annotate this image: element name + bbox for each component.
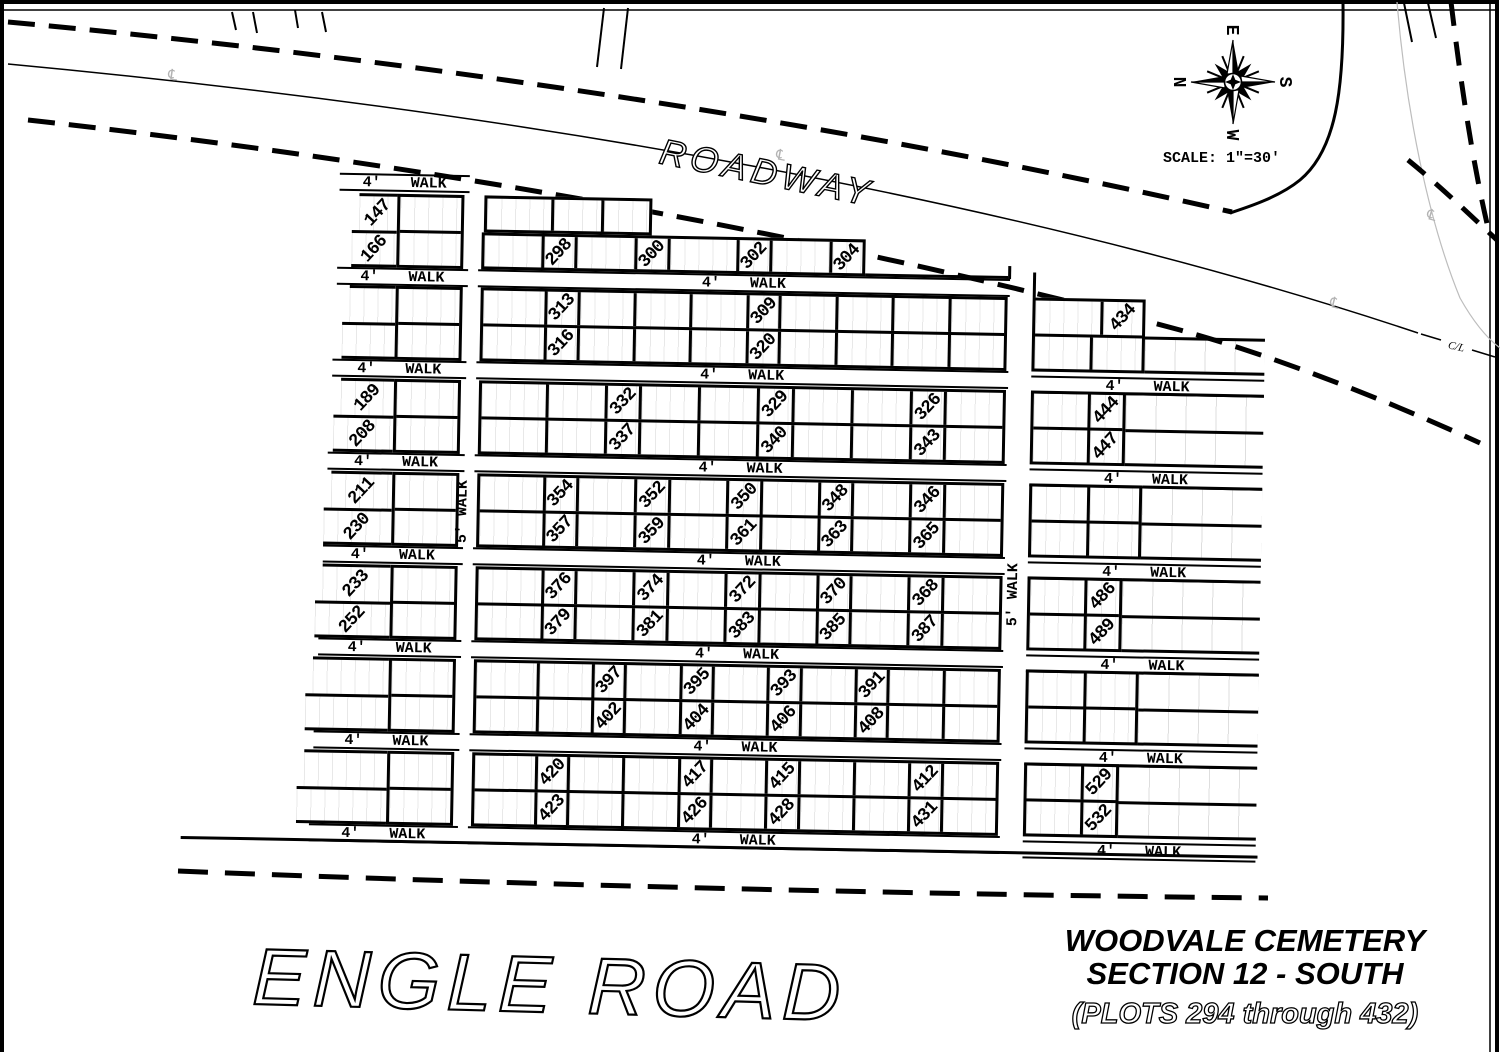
- plot-cell: [475, 755, 535, 789]
- walk-size-label: 4': [695, 645, 713, 662]
- plot-cell: 348: [817, 483, 851, 516]
- plot-number: 529: [1083, 765, 1118, 800]
- plot-cell: [941, 578, 1000, 612]
- walk-size-label: 4': [363, 174, 381, 191]
- plot-number: 387: [908, 612, 943, 647]
- walk-word-label: WALK: [402, 453, 438, 471]
- walk-size-label: 4': [702, 274, 720, 291]
- plot-cell: 326: [909, 391, 944, 424]
- plot-cell: [481, 419, 545, 453]
- plot-row: [400, 197, 462, 231]
- plot-cell: [341, 322, 395, 360]
- plot-cell: 166: [351, 230, 397, 268]
- plot-cell: [940, 613, 999, 647]
- plot-number: 313: [545, 291, 580, 326]
- plot-cell: 332: [604, 386, 639, 419]
- plot-cell: 302: [736, 240, 770, 272]
- plot-cell: 486: [1084, 580, 1119, 613]
- walk-size-label: 4': [697, 552, 715, 569]
- plot-cell: 298: [541, 236, 575, 268]
- plot-cell: 233: [322, 563, 391, 601]
- plot-number: 357: [543, 512, 578, 547]
- title-line-2: SECTION 12 - SOUTH: [1060, 957, 1430, 990]
- compass-letter-bottom: W: [1221, 130, 1241, 141]
- plot-cell: [769, 241, 830, 273]
- plot-cell: [566, 793, 622, 827]
- plot-number: 532: [1082, 801, 1117, 836]
- plot-cell: [1032, 486, 1088, 520]
- plot-section: 397395393391402404406408: [473, 659, 1001, 743]
- plot-row: [1034, 333, 1142, 370]
- plot-cell: [758, 574, 817, 608]
- plot-row: [487, 198, 650, 232]
- plot-number: 298: [542, 235, 577, 270]
- walk-word-label: WALK: [408, 269, 444, 287]
- centerline-dash: [1421, 334, 1441, 340]
- plot-section: 332329326337340343: [478, 380, 1006, 464]
- plot-number: 365: [910, 519, 945, 554]
- plot-cell: 363: [817, 518, 851, 551]
- plot-number: 402: [591, 699, 626, 734]
- plot-section: [389, 565, 457, 640]
- plot-number: 444: [1089, 394, 1124, 429]
- plot-cell: 415: [765, 761, 798, 794]
- plot-number: 166: [357, 231, 392, 266]
- plot-cell: 404: [678, 702, 711, 735]
- walk-strip: 4'WALK: [327, 452, 464, 473]
- plot-cell: [399, 232, 461, 266]
- plot-cell: [535, 699, 591, 733]
- plot-cell: 379: [540, 606, 574, 639]
- centerline-symbol: ℄: [167, 65, 179, 84]
- walk-word-label: WALK: [405, 360, 441, 378]
- plot-cell: [398, 324, 460, 358]
- walk-word-label: WALK: [1148, 657, 1184, 675]
- plot-cell: 357: [542, 513, 576, 546]
- plot-row: [390, 754, 452, 788]
- plot-number: 350: [727, 480, 762, 515]
- plot-number: 309: [747, 294, 782, 329]
- plot-cell: [948, 299, 1005, 333]
- plot-cell: [834, 332, 891, 366]
- section-connector-line: [1033, 272, 1036, 297]
- plot-row: [396, 414, 458, 451]
- walk-strip: 4'WALK: [309, 823, 458, 844]
- plot-cell: [851, 483, 910, 517]
- plot-cell: 211: [331, 471, 393, 509]
- plot-section: 444447: [1030, 390, 1126, 466]
- plot-row: [1032, 486, 1140, 520]
- plot-number: 417: [678, 758, 713, 793]
- walk-size-label: 4': [700, 366, 718, 383]
- plot-cell: [392, 603, 454, 637]
- plot-cell: [697, 423, 757, 457]
- walk-word-label: WALK: [392, 732, 428, 750]
- plot-cell: 408: [854, 705, 887, 738]
- plot-cell: [601, 201, 649, 233]
- plot-cell: 420: [534, 756, 567, 789]
- centerline-dash: [1472, 350, 1495, 357]
- plot-number: 343: [910, 426, 945, 461]
- plot-section: [1025, 669, 1139, 745]
- plot-cell: [639, 386, 699, 420]
- plot-row: [394, 507, 456, 544]
- plot-cell: [545, 385, 605, 419]
- plot-cell: [391, 661, 453, 695]
- empty-plot-strip: [1141, 486, 1262, 562]
- plot-cell: [849, 612, 908, 646]
- plot-cell: 147: [359, 193, 398, 231]
- roadway-cut-step: [1008, 266, 1011, 279]
- plot-number: 189: [350, 381, 385, 416]
- empty-plot-strip: [1144, 337, 1265, 376]
- plot-cell: 365: [908, 520, 942, 553]
- plot-cell: [487, 198, 551, 230]
- plot-cell: 532: [1080, 802, 1115, 835]
- plot-cell: [850, 519, 909, 553]
- plot-section: [394, 286, 462, 361]
- plot-cell: 395: [679, 666, 712, 699]
- plot-number: 361: [726, 515, 761, 550]
- walk-size-label: 4': [1100, 656, 1118, 673]
- walk-word-label: WALK: [1145, 843, 1181, 861]
- walk-strip: 4'WALK: [318, 637, 461, 658]
- plot-cell: [1031, 522, 1087, 556]
- plot-row: [393, 568, 455, 602]
- empty-plot-strip-divider: [1142, 522, 1262, 527]
- plot-cell: [394, 510, 456, 544]
- plot-cell: [798, 704, 854, 738]
- empty-plot-strip: [1118, 764, 1257, 841]
- plot-cell: [891, 298, 948, 332]
- plot-cell: [1028, 672, 1084, 706]
- scale-label: SCALE: 1"=30': [1163, 150, 1280, 167]
- plot-cell: 387: [907, 613, 941, 646]
- plot-cell: [1035, 301, 1101, 335]
- title-line-3: (PLOTS 294 through 432): [1072, 998, 1418, 1030]
- plot-cell: [477, 605, 540, 639]
- title-block: WOODVALE CEMETERY SECTION 12 - SOUTH (PL…: [1060, 924, 1430, 1043]
- compass-letter-top: E: [1221, 25, 1241, 36]
- plot-cell: 370: [816, 576, 850, 609]
- plot-cell: [389, 789, 451, 823]
- plot-cell: [759, 517, 818, 551]
- plot-cell: [886, 705, 942, 739]
- walk-size-label: 4': [354, 453, 372, 470]
- walk-size-label: 4': [351, 546, 369, 563]
- plot-cell: [395, 475, 457, 509]
- plot-section: [388, 658, 456, 733]
- plot-cell: 393: [767, 668, 800, 701]
- plot-number: 434: [1106, 301, 1141, 336]
- plot-number: 372: [725, 573, 760, 608]
- plot-section: [484, 195, 653, 235]
- plot-cell: [479, 512, 542, 546]
- plot-number: 337: [605, 420, 640, 455]
- walk-word-label: WALK: [1153, 378, 1189, 396]
- plot-cell: [396, 382, 458, 416]
- plot-number: 329: [758, 387, 793, 422]
- walk-strip: 4'WALK: [337, 267, 468, 287]
- plot-number: 316: [544, 326, 579, 361]
- plot-number: 374: [634, 571, 669, 606]
- plot-cell: [797, 761, 853, 795]
- plot-cell: [574, 237, 635, 269]
- plot-row: [389, 786, 451, 823]
- plot-number: 395: [680, 665, 715, 700]
- plot-cell: 368: [907, 577, 941, 610]
- plot-cell: [481, 383, 545, 417]
- plot-cell: 313: [544, 292, 577, 325]
- plot-cell: 391: [854, 669, 887, 702]
- plot-cell: 320: [745, 331, 778, 364]
- plot-row: [1031, 519, 1139, 556]
- plot-cell: [1083, 673, 1135, 706]
- walk-strip: 4'WALK: [340, 173, 470, 193]
- walk-size-label: 4': [1097, 842, 1115, 859]
- plot-cell: [483, 326, 544, 360]
- plot-cell: [943, 485, 1002, 519]
- plot-cell: [711, 702, 767, 736]
- plot-cell: 423: [534, 792, 567, 825]
- plot-cell: [667, 239, 737, 271]
- plot-number: 348: [819, 482, 854, 517]
- plot-cell: 447: [1087, 430, 1122, 463]
- plot-cell: [476, 698, 536, 732]
- plot-row: [399, 229, 461, 266]
- plot-cell: 230: [323, 508, 392, 546]
- plot-number: 489: [1085, 615, 1120, 650]
- plot-cell: [942, 520, 1001, 554]
- plot-cell: [483, 290, 544, 324]
- plot-cell: 428: [764, 796, 797, 829]
- plot-cell: [698, 387, 758, 421]
- engle-road-label: ENGLE ROAD: [252, 932, 849, 1038]
- plot-cell: [484, 235, 542, 267]
- plot-cell: [1090, 337, 1142, 370]
- plot-row: [391, 693, 453, 730]
- plot-section: 354352350348346357359361363365: [476, 473, 1004, 557]
- plot-cell: 372: [724, 574, 758, 607]
- plot-section: [1028, 483, 1142, 559]
- plot-row: 447: [1033, 426, 1123, 463]
- cemetery-map: { "title": { "line1": "WOODVALE CEMETERY…: [0, 0, 1500, 1052]
- plot-section: [391, 472, 459, 547]
- plot-section: [396, 194, 464, 269]
- walk-size-label: 4': [348, 638, 366, 655]
- walk-size-label: 4': [1104, 470, 1122, 487]
- plot-number: 404: [679, 701, 714, 736]
- plot-cell: [1034, 336, 1090, 370]
- walk-size-label: 4': [341, 824, 359, 841]
- plot-cell: [791, 389, 851, 423]
- walk-strip: 4'WALK: [323, 545, 463, 566]
- plot-row: [398, 289, 460, 323]
- plot-cell: [349, 285, 396, 323]
- title-line-3-svg: (PLOTS 294 through 432): [1060, 990, 1430, 1038]
- plot-cell: 208: [333, 415, 394, 453]
- walk-word-label: WALK: [745, 553, 781, 571]
- plot-cell: [396, 417, 458, 451]
- walk-size-label: 4': [698, 459, 716, 476]
- compass-rose: E S W N: [1168, 25, 1294, 141]
- plot-cell: 374: [632, 572, 666, 605]
- plot-cell: 354: [542, 478, 576, 511]
- walk-strip: 4'WALK: [313, 730, 459, 751]
- plot-cell: [478, 569, 541, 603]
- plot-number: 233: [339, 567, 374, 602]
- plot-cell: [638, 422, 698, 456]
- empty-plot-strip: [1138, 671, 1259, 747]
- walk-strip: 4'WALK: [1022, 840, 1255, 862]
- plot-number: 412: [909, 762, 944, 797]
- compass-letter-right: S: [1274, 77, 1294, 88]
- plot-row: 529: [1027, 765, 1117, 799]
- plot-row: 532: [1026, 798, 1116, 835]
- plot-cell: [941, 706, 997, 740]
- plot-cell: [1030, 579, 1085, 612]
- plot-cell: [852, 798, 908, 832]
- plot-cell: 426: [677, 795, 710, 828]
- empty-plot-strip-divider: [1138, 708, 1258, 713]
- empty-plot-strip: [1125, 392, 1264, 469]
- plot-number: 354: [544, 477, 579, 512]
- plot-number: 302: [737, 238, 772, 273]
- plot-section: [393, 379, 461, 454]
- walk-size-label: 4': [1102, 563, 1120, 580]
- plot-cell: 361: [725, 516, 759, 549]
- walk-strip: 4'WALK: [332, 359, 466, 379]
- plot-number: 379: [541, 605, 576, 640]
- plot-cell: [576, 328, 633, 362]
- plot-cell: [1029, 615, 1084, 648]
- side-road-faint-curve: [1397, 2, 1500, 348]
- plot-cell: [849, 576, 908, 610]
- plot-cell: [778, 296, 835, 330]
- plot-cell: 300: [634, 238, 668, 270]
- plot-cell: [940, 764, 996, 798]
- walk-word-label: WALK: [750, 275, 786, 293]
- plot-cell: 402: [591, 700, 624, 733]
- plot-cell: 343: [908, 427, 943, 460]
- plot-cell: [400, 197, 462, 231]
- plot-row: 298300302304: [484, 235, 863, 273]
- compass-letter-left: N: [1168, 77, 1188, 88]
- plot-cell: [799, 668, 855, 702]
- plot-number: 370: [817, 575, 852, 610]
- top-right-road-edge: [1451, 2, 1489, 232]
- plot-cell: [835, 297, 892, 331]
- walk-word-label: WALK: [396, 639, 432, 657]
- empty-plot-strip-divider: [1122, 615, 1260, 621]
- plot-cell: [1033, 429, 1088, 462]
- plot-grid: 1471661892082112302332522983003023043133…: [177, 165, 1280, 897]
- plot-cell: [942, 671, 998, 705]
- plot-number: 363: [818, 517, 853, 552]
- plot-cell: 489: [1083, 616, 1118, 649]
- plot-row: [398, 321, 460, 358]
- plot-cell: [1086, 523, 1138, 556]
- walk-word-label: WALK: [411, 175, 447, 193]
- plot-number: 391: [855, 668, 890, 703]
- plot-cell: [391, 696, 453, 730]
- plot-section: 434: [1031, 297, 1145, 373]
- plot-number: 397: [592, 663, 627, 698]
- plot-cell: [623, 701, 679, 735]
- plot-number: 406: [767, 702, 802, 737]
- plot-cell: [886, 670, 942, 704]
- plot-cell: [943, 392, 1003, 426]
- plot-number: 415: [765, 760, 800, 795]
- walk-word-label: WALK: [741, 739, 777, 757]
- plot-cell: [943, 427, 1003, 461]
- plot-cell: 529: [1081, 766, 1116, 799]
- walk-size-label: 4': [357, 360, 375, 377]
- plot-cell: [621, 794, 677, 828]
- plot-cell: 431: [907, 799, 940, 832]
- plot-cell: 304: [829, 242, 863, 274]
- plot-row: 434: [1035, 301, 1143, 335]
- plot-cell: [778, 331, 835, 365]
- plot-cell: [574, 607, 633, 641]
- plot-cell: [476, 662, 536, 696]
- roadway-cut-line: [865, 239, 1009, 279]
- plot-number: 381: [633, 607, 668, 642]
- plot-cell: [633, 293, 690, 327]
- plot-cell: [1083, 709, 1135, 742]
- plot-number: 252: [335, 602, 370, 637]
- plot-cell: [1026, 801, 1081, 834]
- plot-cell: [566, 757, 622, 791]
- plot-cell: [480, 476, 543, 510]
- plot-cell: [709, 795, 765, 829]
- plot-cell: [474, 791, 534, 825]
- plot-number: 304: [830, 240, 865, 275]
- plot-cell: [665, 608, 724, 642]
- plot-section: 420417415412423426428431: [471, 752, 999, 836]
- plot-cell: 397: [592, 664, 625, 697]
- plot-cell: [711, 667, 767, 701]
- plot-cell: [790, 425, 850, 459]
- walk-size-label: 4': [1099, 749, 1117, 766]
- plot-number: 359: [635, 514, 670, 549]
- walk-word-label: WALK: [389, 825, 425, 843]
- plot-number: 346: [910, 483, 945, 518]
- plot-cell: [393, 568, 455, 602]
- plot-number: 376: [542, 570, 577, 605]
- side-road-curve: [1230, 2, 1343, 213]
- plot-number: 420: [535, 755, 570, 790]
- plot-number: 428: [765, 795, 800, 830]
- walk-word-label: WALK: [748, 367, 784, 385]
- plot-number: 447: [1089, 429, 1124, 464]
- plot-cell: 252: [314, 600, 390, 638]
- plot-cell: 346: [909, 484, 943, 517]
- walk-word-label: WALK: [1147, 750, 1183, 768]
- plot-number: 486: [1086, 579, 1121, 614]
- plot-cell: [576, 478, 635, 512]
- plot-row: [392, 600, 454, 637]
- walk-word-label: WALK: [1152, 471, 1188, 489]
- plot-number: 352: [635, 478, 670, 513]
- plot-number: 383: [725, 608, 760, 643]
- plot-cell: [757, 610, 816, 644]
- plot-number: 431: [908, 798, 943, 833]
- plot-cell: [850, 390, 910, 424]
- empty-plot-strip-divider: [1125, 429, 1263, 435]
- plot-number: 230: [340, 509, 375, 544]
- plot-number: 300: [635, 236, 670, 271]
